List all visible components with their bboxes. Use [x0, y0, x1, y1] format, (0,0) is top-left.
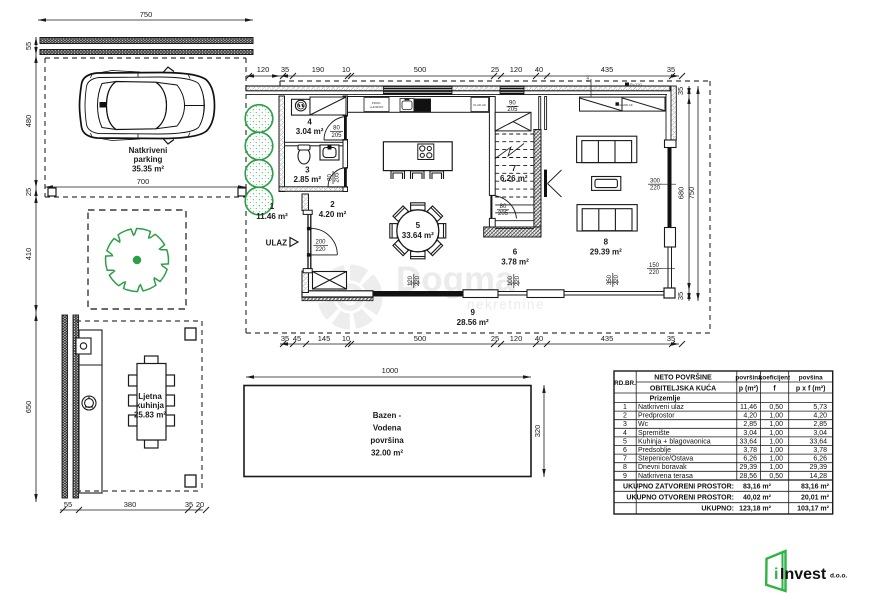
svg-text:Spremište: Spremište: [638, 430, 670, 437]
svg-text:220: 220: [650, 186, 661, 192]
svg-text:i: i: [774, 566, 778, 583]
svg-text:28,56: 28,56: [739, 473, 757, 480]
svg-text:200: 200: [315, 240, 326, 246]
svg-text:0,50: 0,50: [769, 473, 783, 480]
svg-text:Prizemlje: Prizemlje: [650, 395, 681, 402]
svg-text:35: 35: [281, 65, 289, 74]
svg-text:Predprostor: Predprostor: [638, 413, 675, 420]
svg-text:25: 25: [491, 65, 499, 74]
svg-text:80: 80: [500, 204, 507, 210]
svg-text:5,73: 5,73: [813, 404, 827, 411]
svg-text:1000: 1000: [382, 366, 399, 375]
svg-text:6: 6: [623, 447, 627, 454]
svg-text:220: 220: [614, 274, 620, 285]
svg-text:1: 1: [623, 404, 627, 411]
svg-text:8: 8: [604, 238, 609, 247]
svg-text:35: 35: [667, 65, 675, 74]
svg-text:145: 145: [318, 334, 331, 343]
svg-text:Natkrivena terasa: Natkrivena terasa: [638, 473, 693, 480]
svg-text:750: 750: [140, 10, 153, 19]
svg-text:435: 435: [601, 334, 614, 343]
svg-text:55: 55: [24, 42, 33, 50]
svg-text:205: 205: [331, 133, 342, 139]
svg-text:300: 300: [650, 179, 661, 185]
svg-text:29,39: 29,39: [739, 464, 757, 471]
svg-text:1: 1: [270, 202, 275, 211]
svg-text:120: 120: [408, 275, 414, 286]
svg-text:240: 240: [585, 75, 590, 82]
svg-text:2.85 m²: 2.85 m²: [294, 175, 322, 184]
svg-text:3.04 m²: 3.04 m²: [296, 127, 324, 136]
svg-text:220: 220: [415, 275, 421, 286]
svg-text:90: 90: [509, 101, 516, 107]
svg-text:OBITELJSKA KUĆA: OBITELJSKA KUĆA: [650, 384, 716, 393]
svg-text:3.78 m²: 3.78 m²: [501, 258, 529, 267]
svg-text:11.46 m²: 11.46 m²: [256, 212, 288, 221]
svg-text:80: 80: [333, 126, 340, 132]
svg-text:Bazen -: Bazen -: [373, 411, 402, 420]
svg-text:p x f (m²): p x f (m²): [796, 386, 826, 393]
svg-text:205: 205: [507, 107, 518, 113]
svg-text:4: 4: [623, 430, 627, 437]
svg-text:površina: površina: [370, 436, 404, 445]
svg-text:Ljetna: Ljetna: [138, 392, 162, 401]
svg-text:nekretnine: nekretnine: [467, 297, 545, 312]
svg-text:4: 4: [307, 118, 312, 127]
svg-text:6,26: 6,26: [813, 456, 827, 463]
svg-text:6.26 m²: 6.26 m²: [500, 174, 528, 183]
svg-text:120: 120: [257, 65, 270, 74]
svg-text:435: 435: [601, 65, 614, 74]
svg-text:33,64: 33,64: [739, 438, 757, 445]
svg-text:9: 9: [470, 308, 475, 317]
svg-text:205: 205: [335, 172, 341, 183]
svg-text:3,04: 3,04: [743, 430, 757, 437]
svg-text:80: 80: [328, 174, 334, 181]
svg-text:3,78: 3,78: [813, 447, 827, 454]
svg-text:33.64 m²: 33.64 m²: [402, 231, 434, 240]
svg-text:32.00 m²: 32.00 m²: [371, 449, 403, 458]
svg-text:Dnevni boravak: Dnevni boravak: [638, 464, 687, 471]
svg-text:103,17 m²: 103,17 m²: [797, 506, 830, 513]
svg-text:UKUPNO:: UKUPNO:: [701, 506, 734, 513]
svg-text:0,50: 0,50: [769, 404, 783, 411]
svg-text:+HORVAT: +HORVAT: [370, 105, 384, 109]
svg-text:480: 480: [24, 115, 33, 128]
svg-text:40,02 m²: 40,02 m²: [743, 495, 772, 502]
svg-text:4.20 m²: 4.20 m²: [319, 210, 347, 219]
svg-text:3,04: 3,04: [813, 430, 827, 437]
svg-text:3,78: 3,78: [743, 447, 757, 454]
svg-text:1,00: 1,00: [769, 447, 783, 454]
svg-text:205: 205: [498, 211, 509, 217]
svg-text:123,18 m²: 123,18 m²: [739, 506, 772, 513]
svg-text:7: 7: [623, 456, 627, 463]
svg-text:55: 55: [64, 500, 72, 509]
svg-text:11,46: 11,46: [740, 404, 757, 411]
svg-text:NETO POVRŠINE: NETO POVRŠINE: [654, 373, 712, 382]
svg-text:Predsoblje: Predsoblje: [638, 447, 671, 454]
svg-text:14,28: 14,28: [809, 473, 827, 480]
svg-text:4,20: 4,20: [743, 413, 757, 420]
svg-text:UKUPNO ZATVORENI PROSTOR:: UKUPNO ZATVORENI PROSTOR:: [623, 484, 734, 491]
svg-text:7: 7: [512, 164, 517, 173]
svg-text:190: 190: [312, 65, 325, 74]
svg-text:9: 9: [623, 473, 627, 480]
svg-text:6,26: 6,26: [743, 456, 757, 463]
svg-text:2: 2: [330, 200, 335, 209]
svg-text:35.35 m²: 35.35 m²: [132, 165, 164, 174]
svg-text:150: 150: [649, 263, 660, 269]
svg-text:UKUPNO OTVORENI PROSTOR:: UKUPNO OTVORENI PROSTOR:: [626, 495, 734, 502]
svg-text:750: 750: [687, 187, 696, 200]
svg-text:1,00: 1,00: [769, 464, 783, 471]
svg-text:Invest: Invest: [780, 566, 827, 583]
svg-text:220: 220: [315, 247, 326, 253]
svg-text:83,16 m²: 83,16 m²: [801, 484, 830, 491]
svg-text:35: 35: [185, 500, 193, 509]
svg-text:GARD.AK: GARD.AK: [619, 103, 633, 107]
svg-text:29.39 m²: 29.39 m²: [590, 248, 622, 257]
svg-text:5: 5: [623, 438, 627, 445]
svg-text:2: 2: [623, 413, 627, 420]
svg-text:1,00: 1,00: [769, 421, 783, 428]
svg-text:P=120: P=120: [630, 82, 642, 87]
svg-text:320: 320: [533, 425, 542, 438]
svg-text:1,00: 1,00: [769, 438, 783, 445]
svg-text:25.83 m²: 25.83 m²: [134, 411, 166, 420]
svg-text:410: 410: [24, 248, 33, 261]
svg-text:3: 3: [305, 166, 310, 175]
svg-text:100: 100: [508, 275, 514, 286]
svg-text:d.o.o.: d.o.o.: [830, 573, 848, 580]
svg-text:35: 35: [676, 87, 685, 95]
svg-text:29,39: 29,39: [809, 464, 827, 471]
svg-text:20: 20: [196, 500, 204, 509]
svg-text:25: 25: [24, 188, 33, 196]
svg-text:2,85: 2,85: [743, 421, 757, 428]
svg-text:parking: parking: [134, 155, 163, 164]
svg-text:1,00: 1,00: [769, 413, 783, 420]
svg-text:35: 35: [676, 292, 685, 300]
svg-text:povšina: povšina: [799, 375, 823, 382]
svg-text:220: 220: [649, 270, 660, 276]
svg-text:20,01 m²: 20,01 m²: [801, 495, 830, 502]
svg-text:10: 10: [342, 65, 350, 74]
svg-text:koeficijent: koeficijent: [759, 375, 791, 382]
svg-text:Stepenice/Ostava: Stepenice/Ostava: [638, 456, 693, 463]
svg-text:120: 120: [510, 65, 523, 74]
svg-text:3: 3: [623, 421, 627, 428]
svg-text:350: 350: [607, 274, 613, 285]
svg-text:8: 8: [623, 464, 627, 471]
svg-text:Kuhinja + blagovaonica: Kuhinja + blagovaonica: [638, 438, 711, 445]
svg-text:1,00: 1,00: [769, 456, 783, 463]
svg-text:33,64: 33,64: [809, 438, 827, 445]
svg-text:380: 380: [124, 500, 137, 509]
svg-text:40: 40: [535, 334, 543, 343]
svg-text:p (m²): p (m²): [739, 386, 758, 393]
svg-text:45: 45: [293, 334, 301, 343]
svg-text:650: 650: [24, 401, 33, 414]
svg-text:Wc: Wc: [638, 421, 649, 428]
svg-text:35: 35: [667, 334, 675, 343]
svg-text:40: 40: [535, 65, 543, 74]
svg-text:28.56 m²: 28.56 m²: [457, 318, 489, 327]
svg-text:35: 35: [281, 334, 289, 343]
svg-text:RD.BR.: RD.BR.: [614, 380, 636, 387]
svg-text:Natkriveni: Natkriveni: [129, 146, 168, 155]
svg-text:120: 120: [510, 334, 523, 343]
svg-text:25: 25: [491, 334, 499, 343]
svg-text:Natkriveni ulaz: Natkriveni ulaz: [638, 404, 684, 411]
svg-text:Vodena: Vodena: [373, 424, 402, 433]
svg-text:500: 500: [414, 65, 427, 74]
svg-text:6: 6: [513, 248, 518, 257]
svg-text:680: 680: [677, 187, 686, 200]
svg-text:220: 220: [515, 275, 521, 286]
svg-text:4,20: 4,20: [813, 413, 827, 420]
svg-text:KLAD.AK: KLAD.AK: [473, 103, 486, 107]
svg-text:2,85: 2,85: [813, 421, 827, 428]
svg-text:10: 10: [342, 334, 350, 343]
svg-text:ULAZ: ULAZ: [266, 239, 287, 248]
svg-text:700: 700: [137, 177, 150, 186]
svg-text:500: 500: [414, 334, 427, 343]
svg-text:kuhinja: kuhinja: [136, 401, 165, 410]
svg-text:83,16 m²: 83,16 m²: [743, 484, 772, 491]
svg-text:1,00: 1,00: [769, 430, 783, 437]
svg-text:5: 5: [416, 221, 421, 230]
